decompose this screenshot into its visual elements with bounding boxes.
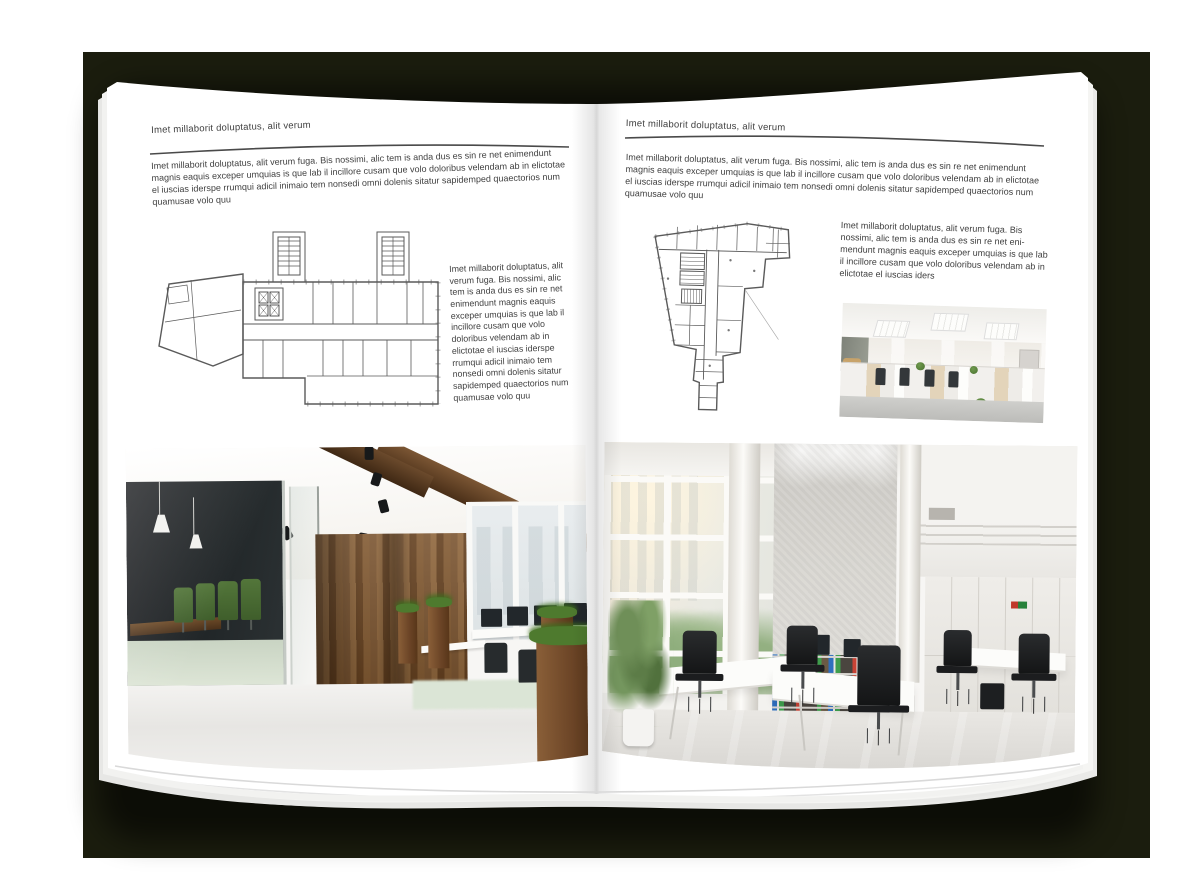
office-chair	[1019, 634, 1050, 674]
balustrade	[916, 519, 1077, 547]
plant	[916, 362, 924, 370]
light-panel	[930, 313, 968, 332]
office-chair	[948, 371, 959, 387]
magazine-spread: Imet millaborit doluptatus, alit verum I…	[105, 68, 1090, 813]
open-book: Imet millaborit doluptatus, alit verum I…	[105, 68, 1090, 813]
office-chair	[899, 367, 910, 386]
office-chair	[787, 625, 818, 665]
concrete-wall	[773, 443, 898, 655]
office-chair	[875, 368, 886, 385]
office-chair	[683, 631, 716, 674]
plan-drawing	[651, 221, 791, 411]
office-photo-right	[602, 442, 1078, 776]
light-panel	[872, 320, 909, 338]
vent-grille	[929, 508, 955, 520]
office-chair	[943, 630, 972, 667]
side-paragraph: Imet millaborit doluptatus, alit verum f…	[839, 220, 1049, 286]
intro-paragraph: Imet millaborit doluptatus, alit verum f…	[625, 152, 1040, 211]
column	[898, 445, 921, 683]
office-chair	[924, 369, 935, 386]
waste-bin	[981, 683, 1005, 710]
spine-shadow	[572, 68, 621, 813]
mezzanine	[915, 445, 1077, 578]
header-rule	[624, 132, 1046, 152]
concrete-texture	[773, 443, 898, 655]
office-photo-small	[839, 303, 1046, 423]
floor-plan-right	[642, 218, 797, 418]
exit-sign	[1018, 602, 1027, 609]
plant	[969, 366, 977, 374]
plant-pot	[623, 709, 654, 746]
light-panel	[983, 322, 1018, 340]
mockup-canvas: Imet millaborit doluptatus, alit verum I…	[0, 0, 1200, 891]
office-chair	[858, 645, 901, 705]
